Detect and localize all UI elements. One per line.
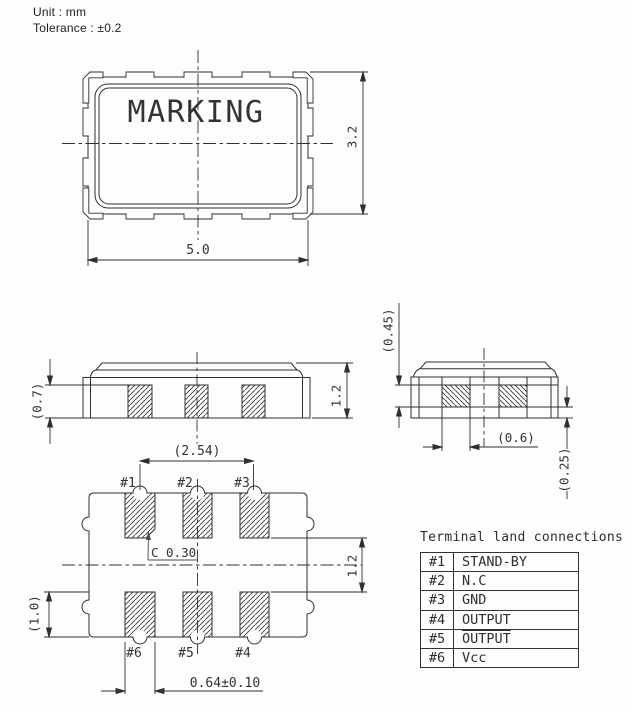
dim-electrode-height-label: (0.45) xyxy=(381,308,396,353)
dim-electrode-height-0-45 xyxy=(397,303,402,428)
dim-rim-height-label: (0.25) xyxy=(557,447,572,492)
dim-width-label: 5.0 xyxy=(186,243,209,258)
top-view: MARKING 5.0 3.2 xyxy=(62,50,368,266)
pad-label-6: #6 xyxy=(126,646,142,661)
front-pad xyxy=(185,385,208,418)
pin-cell: #5 xyxy=(421,630,454,648)
pad-label-1: #1 xyxy=(120,476,136,491)
dim-pad-length-label: (1.0) xyxy=(27,595,42,633)
dim-height-label: 3.2 xyxy=(345,126,360,149)
pad-label-3: #3 xyxy=(234,476,250,491)
end-pad xyxy=(442,385,470,407)
table-row: #3GND xyxy=(421,590,578,609)
pad-label-2: #2 xyxy=(177,476,193,491)
terminal-land-connections: Terminal land connections #1STAND-BY#2N.… xyxy=(420,530,623,668)
dim-pad-height-label: (0.7) xyxy=(30,383,45,421)
table-row: #4OUTPUT xyxy=(421,610,578,629)
end-pad xyxy=(499,385,527,407)
dim-pad-height-0-7 xyxy=(45,359,128,444)
chamfer-note-label: C 0.30 xyxy=(151,545,196,560)
end-body xyxy=(411,377,558,418)
dim-body-height-1-2 xyxy=(296,363,353,418)
pin-cell: #4 xyxy=(421,611,454,629)
pin-cell: #2 xyxy=(421,572,454,590)
table-title: Terminal land connections xyxy=(420,530,623,545)
table-row: #1STAND-BY xyxy=(421,553,578,571)
pin-cell: #6 xyxy=(421,649,454,667)
terminal-table-rows: #1STAND-BY#2N.C#3GND#4OUTPUT#5OUTPUT#6Vc… xyxy=(420,552,579,668)
signal-cell: N.C xyxy=(454,573,486,589)
end-lid-step xyxy=(413,369,557,377)
front-lid-step xyxy=(90,370,303,378)
dim-pad-width-label: 0.64±0.10 xyxy=(190,676,260,691)
signal-cell: STAND-BY xyxy=(454,554,527,570)
dim-pitch-label: (2.54) xyxy=(174,444,221,459)
signal-cell: GND xyxy=(454,592,486,608)
marking-text: MARKING xyxy=(128,95,265,130)
signal-cell: Vcc xyxy=(454,650,486,666)
front-pad xyxy=(128,385,152,418)
dim-row-gap-label: 1.2 xyxy=(345,555,360,578)
table-row: #5OUTPUT xyxy=(421,629,578,648)
end-side-view: (0.45) (0.6) (0.25) xyxy=(381,303,574,499)
front-pad xyxy=(242,385,265,418)
pin-cell: #3 xyxy=(421,591,454,609)
front-lid-top xyxy=(96,363,297,370)
drawing-sheet: Unit : mm Tolerance : ±0.2 xyxy=(0,0,632,712)
table-row: #2N.C xyxy=(421,571,578,590)
signal-cell: OUTPUT xyxy=(454,631,511,647)
pad-label-5: #5 xyxy=(178,646,194,661)
dim-end-pad-width-label: (0.6) xyxy=(497,430,535,445)
pin-cell: #1 xyxy=(421,553,454,571)
front-side-view: (0.7) 1.2 xyxy=(30,352,354,444)
dim-body-height-label: 1.2 xyxy=(329,385,344,408)
table-row: #6Vcc xyxy=(421,648,578,667)
bottom-view: #1 #2 #3 #6 #5 #4 (2.54) 1.2 xyxy=(27,444,368,694)
signal-cell: OUTPUT xyxy=(454,612,511,628)
dim-pad-length-1-0 xyxy=(44,592,89,637)
end-lid-top xyxy=(420,362,551,369)
pad-label-4: #4 xyxy=(235,646,251,661)
